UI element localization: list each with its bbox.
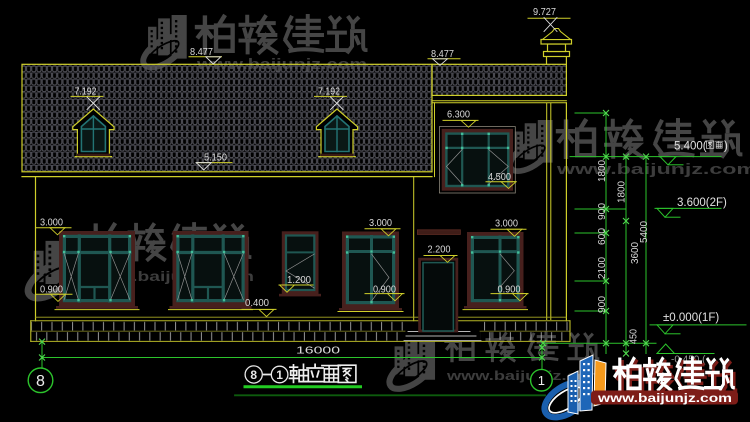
svg-text:www.baijunjz.com: www.baijunjz.com	[597, 391, 732, 405]
svg-text:7.192: 7.192	[318, 86, 340, 98]
svg-text:5.150: 5.150	[204, 152, 227, 164]
svg-text:3.000: 3.000	[495, 218, 518, 230]
svg-text:5400: 5400	[639, 221, 650, 243]
svg-text:0.400: 0.400	[245, 297, 269, 309]
svg-text:8.477: 8.477	[190, 46, 213, 58]
svg-text:900: 900	[597, 296, 608, 313]
svg-text:1: 1	[276, 368, 283, 382]
svg-text:1: 1	[538, 373, 545, 388]
svg-text:1.200: 1.200	[287, 274, 311, 286]
svg-text:600: 600	[597, 228, 608, 245]
svg-text:8.477: 8.477	[431, 48, 454, 60]
svg-text:3.000: 3.000	[40, 217, 63, 229]
svg-text:9.727: 9.727	[533, 6, 556, 18]
svg-text:3.000: 3.000	[369, 217, 392, 229]
svg-text:2100: 2100	[597, 257, 608, 279]
svg-text:450: 450	[629, 329, 640, 344]
svg-text:www.baijunjz.com: www.baijunjz.com	[555, 162, 750, 178]
svg-text:7.192: 7.192	[75, 86, 97, 98]
svg-text:16000: 16000	[296, 344, 340, 356]
svg-text:900: 900	[597, 203, 608, 220]
svg-text:±0.000(1F): ±0.000(1F)	[663, 312, 719, 324]
svg-text:8: 8	[36, 373, 45, 390]
svg-text:): )	[724, 141, 728, 153]
svg-text:5.400(: 5.400(	[674, 141, 707, 153]
svg-text:6.300: 6.300	[447, 109, 470, 121]
svg-text:3600: 3600	[630, 242, 641, 264]
svg-text:1800: 1800	[597, 160, 608, 182]
svg-text:8: 8	[250, 368, 257, 382]
svg-text:3.600(2F): 3.600(2F)	[677, 197, 727, 209]
svg-text:2.200: 2.200	[428, 244, 451, 256]
svg-text:1800: 1800	[617, 181, 628, 203]
